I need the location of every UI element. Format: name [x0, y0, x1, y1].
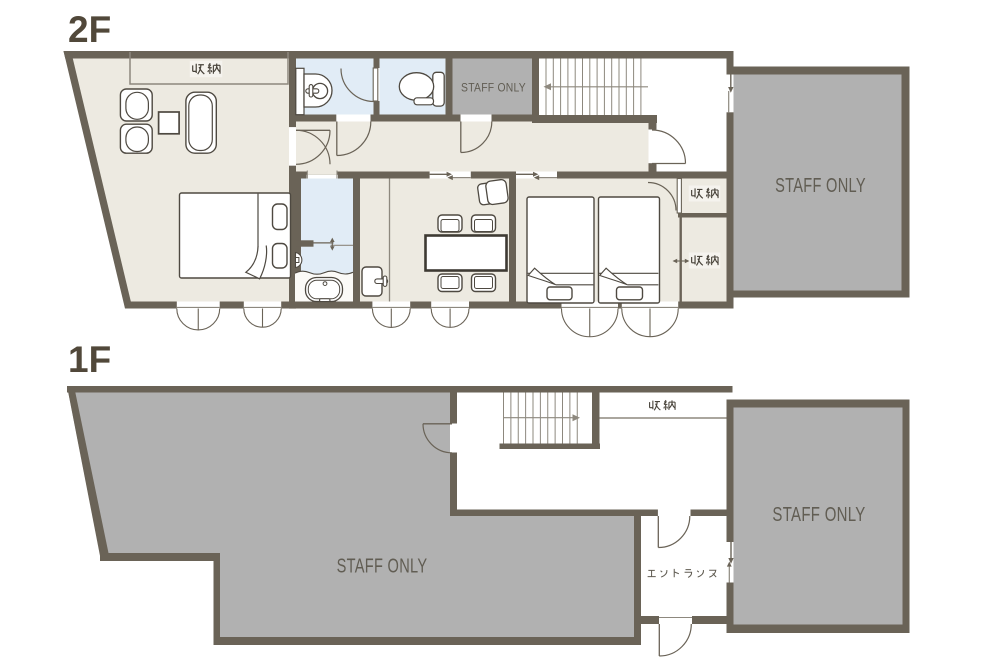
svg-text:STAFF ONLY: STAFF ONLY	[775, 174, 866, 197]
svg-text:STAFF ONLY: STAFF ONLY	[772, 503, 865, 526]
svg-text:STAFF ONLY: STAFF ONLY	[461, 82, 526, 95]
svg-text:2F: 2F	[68, 9, 111, 50]
svg-text:STAFF ONLY: STAFF ONLY	[337, 554, 428, 577]
svg-text:1F: 1F	[68, 339, 111, 380]
